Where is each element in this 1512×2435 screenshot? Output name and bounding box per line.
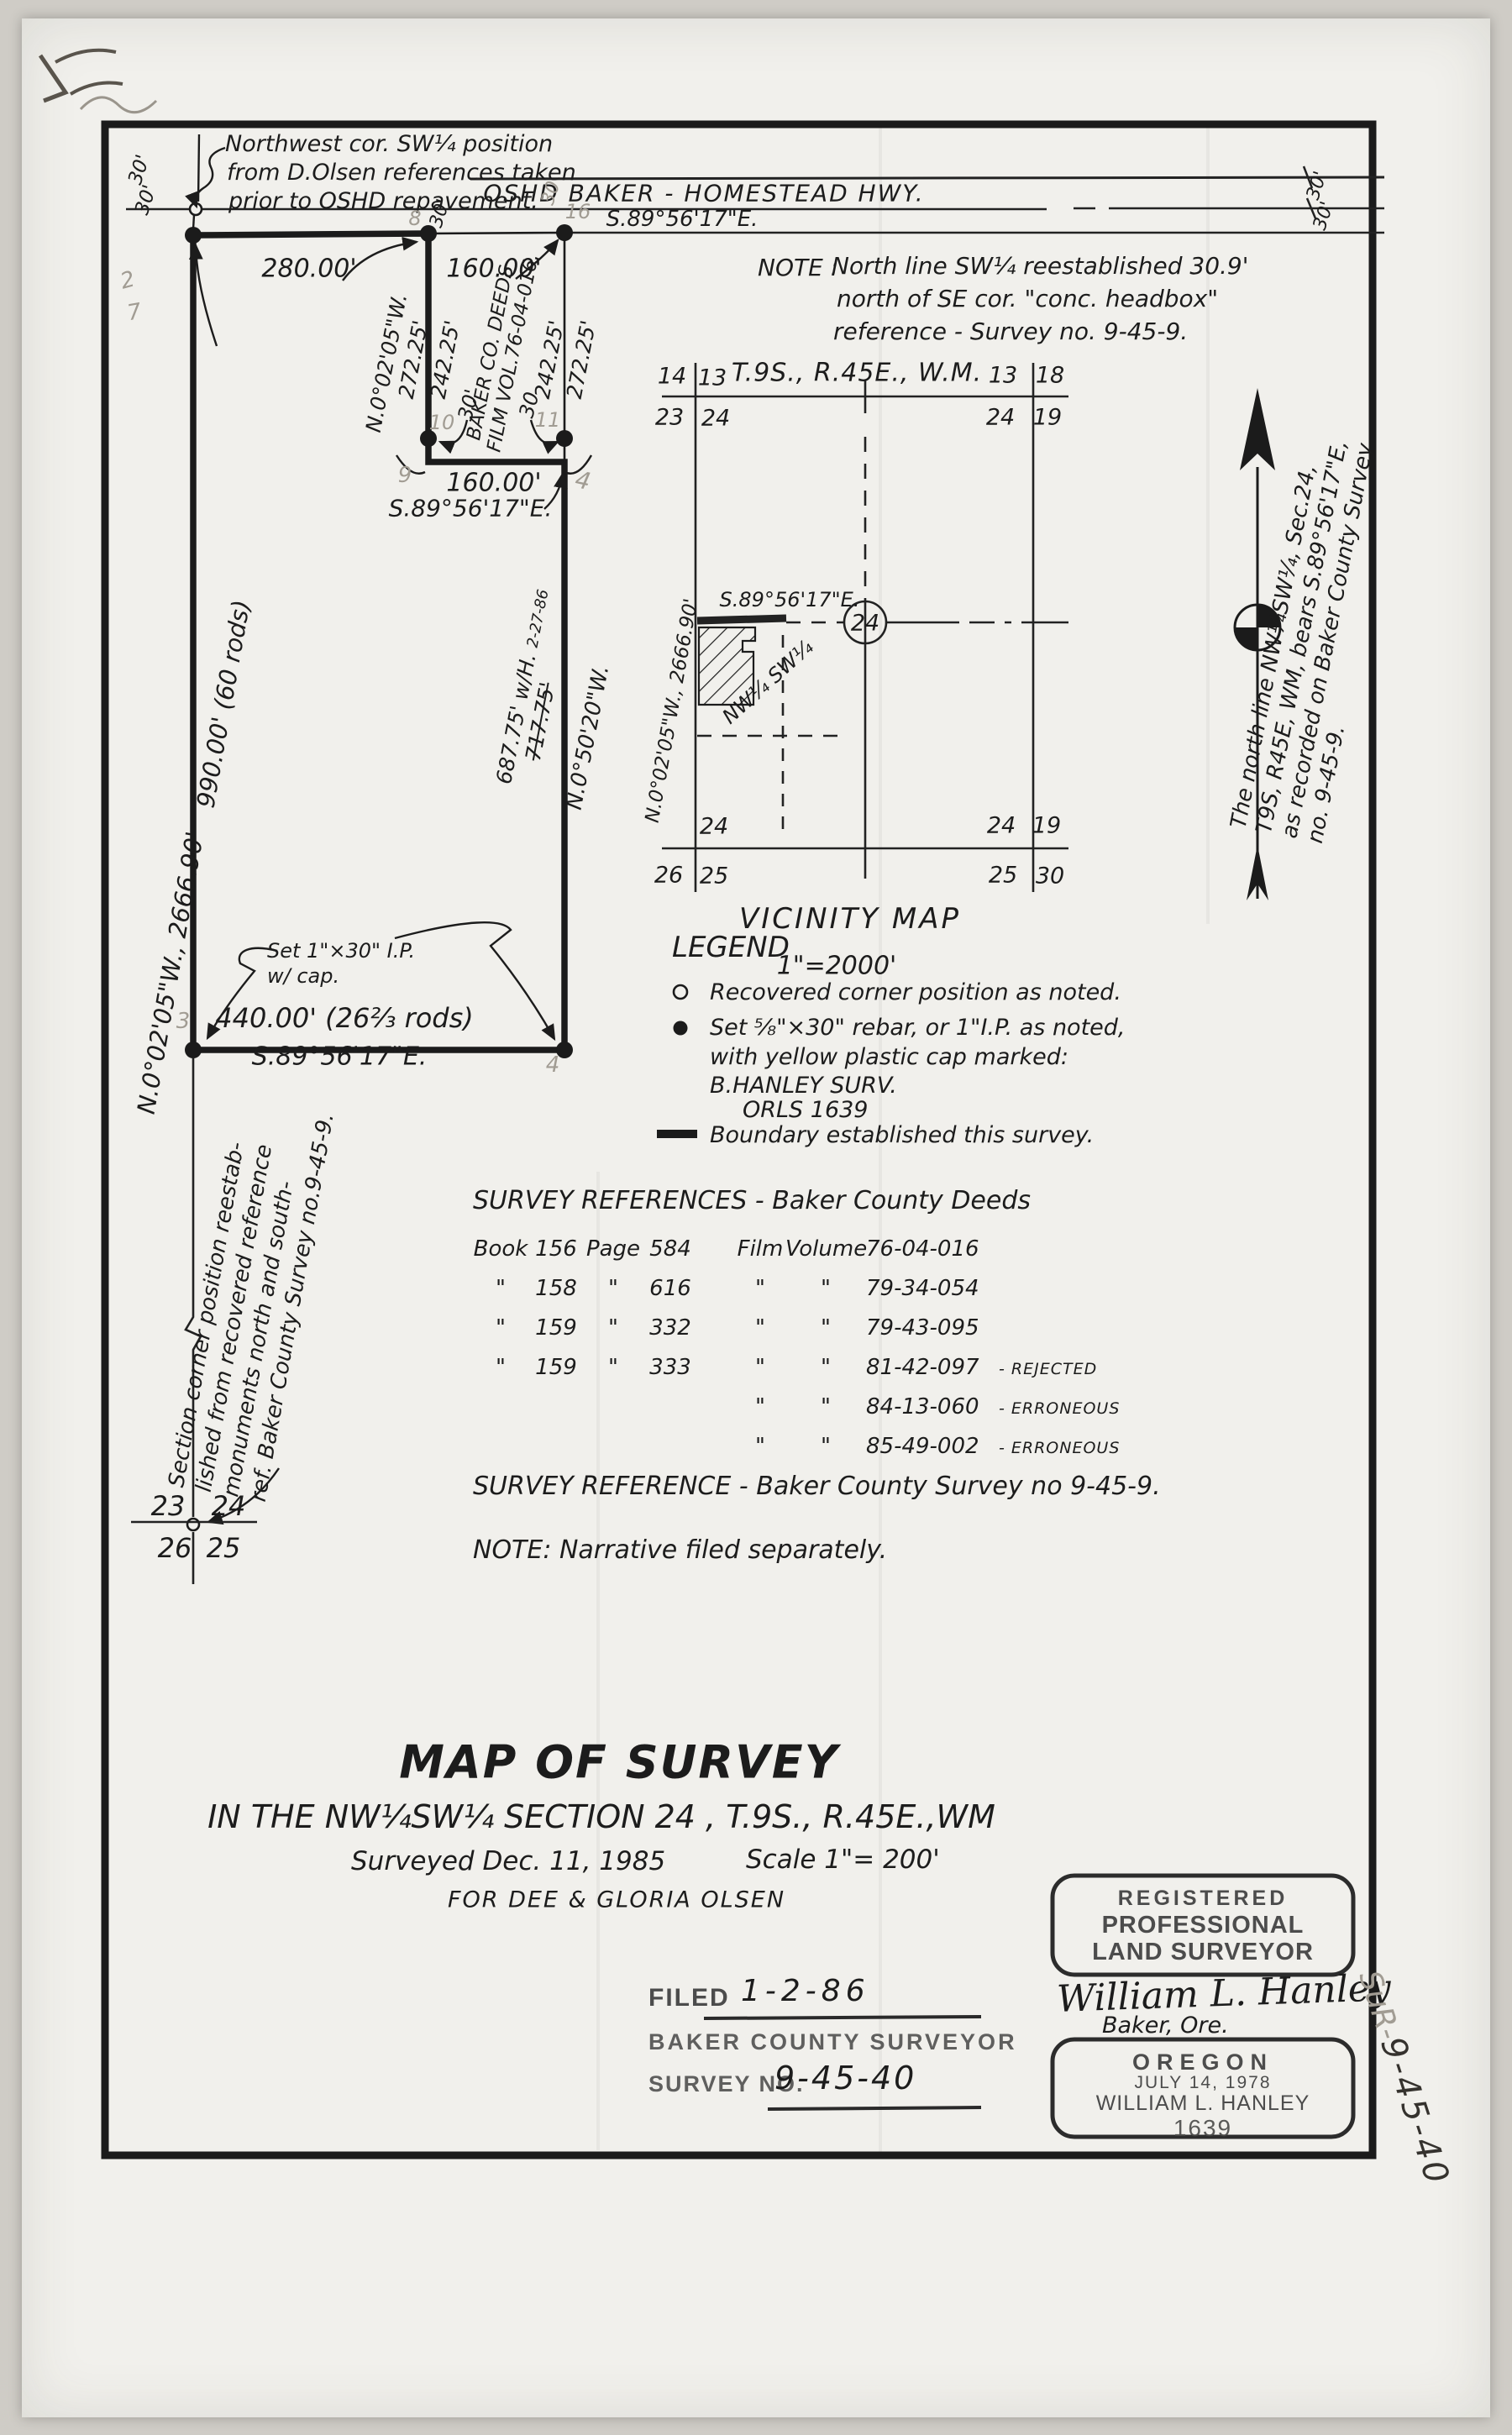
legend-item2-line3: B.HANLEY SURV. [710, 1073, 897, 1099]
ref-film-label: " [735, 1276, 785, 1301]
pencil-mark: 11 [535, 408, 561, 432]
legend-filled-circle-icon [674, 1021, 688, 1036]
map-scale: Scale 1"= 200' [746, 1845, 940, 1875]
vicinity-sec-num: 23 [655, 405, 684, 431]
map-subtitle: IN THE NW¼SW¼ SECTION 24 , T.9S., R.45E.… [207, 1798, 995, 1835]
reference-row: ""84-13-060- ERRONEOUS [473, 1394, 1120, 1434]
reference-row: "159"332""79-43-095 [473, 1315, 1120, 1355]
pencil-mark: 9 [398, 463, 412, 488]
county-surveyor-stamp: BAKER COUNTY SURVEYOR [648, 2029, 1017, 2055]
vicinity-sec-num: 19 [1033, 405, 1062, 431]
section-corner-24: 24 [212, 1490, 246, 1522]
vicinity-sec-num: 19 [1032, 813, 1061, 839]
surveyed-date: Surveyed Dec. 11, 1985 [351, 1846, 665, 1876]
ref-vol-label: " [785, 1276, 866, 1301]
stamp-number: 1639 [1053, 2115, 1353, 2142]
highway-bearing: S.89°56'17"E. [606, 207, 759, 232]
ref-book-label: " [473, 1315, 528, 1341]
stamp-name: WILLIAM L. HANLEY [1053, 2091, 1353, 2116]
client-line: FOR DEE & GLORIA OLSEN [448, 1887, 785, 1913]
vicinity-sec-num: 13 [989, 363, 1017, 389]
vicinity-sec-num: 14 [658, 364, 686, 390]
ref-book-label: Book [473, 1236, 528, 1262]
ref-page: 584 [643, 1236, 698, 1262]
scanned-survey-document: { "margin_label": {"prefix": "SuR-", "nu… [0, 0, 1512, 2435]
ref-page-label: " [584, 1276, 643, 1301]
ref-book-label: " [473, 1276, 528, 1301]
references-title: SURVEY REFERENCES - Baker County Deeds [473, 1186, 1031, 1215]
stamp-line1: REGISTERED [1053, 1887, 1353, 1911]
set-ip-note-line1: Set 1"×30" I.P. [267, 939, 415, 963]
vicinity-sec-num: 24 [701, 406, 730, 432]
vicinity-sec-num: 25 [989, 863, 1017, 889]
ref-film-label: " [735, 1315, 785, 1341]
ref-book: 156 [528, 1236, 584, 1262]
section-corner-26: 26 [158, 1532, 192, 1564]
legend-item2-line4: ORLS 1639 [743, 1097, 869, 1123]
stamp-date: JULY 14, 1978 [1053, 2073, 1353, 2093]
signature-city: Baker, Ore. [1102, 2013, 1229, 2039]
ref-suffix: - ERRONEOUS [999, 1399, 1120, 1418]
stamp-state: OREGON [1053, 2049, 1353, 2076]
stamp-line3: LAND SURVEYOR [1053, 1939, 1353, 1966]
vicinity-scale: 1"=2000' [777, 952, 897, 981]
ref-film-label: " [735, 1355, 785, 1380]
reference-row: "159"333""81-42-097- REJECTED [473, 1355, 1120, 1394]
ref-number: 76-04-016 [866, 1236, 999, 1262]
pencil-mark: 4 [546, 1052, 560, 1078]
ref-book-label: " [473, 1355, 528, 1380]
ref-vol-label: Volume [785, 1236, 866, 1262]
ref-book: 158 [528, 1276, 584, 1301]
narrative-note: NOTE: Narrative filed separately. [473, 1535, 887, 1565]
vicinity-sec-num: 18 [1036, 363, 1064, 389]
vicinity-sec-num: 13 [698, 365, 727, 391]
ref-number: 85-49-002 [866, 1434, 999, 1459]
ne-note-line3: reference - Survey no. 9-45-9. [833, 317, 1188, 345]
legend-item3: Boundary established this survey. [710, 1122, 1094, 1148]
nw-corner-note-line1: Northwest cor. SW¼ position [225, 131, 553, 157]
legend-item1: Recovered corner position as noted. [710, 979, 1121, 1005]
pencil-mark: 8 [408, 207, 421, 230]
vicinity-bearing: S.89°56'17"E. [720, 588, 860, 611]
vicinity-sec-num: 24 [986, 405, 1015, 431]
filed-label: FILED [648, 1984, 730, 2013]
ref-page: 332 [643, 1315, 698, 1341]
pencil-mark: 10 [429, 411, 455, 434]
reference-single: SURVEY REFERENCE - Baker County Survey n… [473, 1472, 1161, 1501]
ref-suffix: - ERRONEOUS [999, 1439, 1120, 1457]
reference-row: ""85-49-002- ERRONEOUS [473, 1434, 1120, 1473]
ne-note-label: NOTE : [758, 254, 838, 281]
ref-vol-label: " [785, 1315, 866, 1341]
dim-440: 440.00' (26⅔ rods) [215, 1002, 474, 1034]
pencil-mark: 16 [565, 200, 591, 223]
survey-no-value: 9-45-40 [774, 2060, 916, 2097]
map-title: MAP OF SURVEY [399, 1736, 839, 1789]
ref-number: 79-34-054 [866, 1276, 999, 1301]
section-corner-23: 23 [151, 1490, 186, 1522]
ref-film-label: Film [735, 1236, 785, 1262]
reference-row: Book156Page584FilmVolume76-04-016 [473, 1236, 1120, 1276]
ref-vol-label: " [785, 1394, 866, 1420]
ref-page: 616 [643, 1276, 698, 1301]
ref-number: 81-42-097 [866, 1355, 999, 1380]
dim-160-jog: 160.00' [446, 469, 541, 498]
filed-date: 1-2-86 [741, 1974, 870, 2008]
ne-note-line1: North line SW¼ reestablished 30.9' [832, 252, 1248, 280]
dim-280: 280.00' [261, 255, 356, 284]
ref-vol-label: " [785, 1434, 866, 1459]
ref-book: 159 [528, 1315, 584, 1341]
jog-bearing: S.89°56'17"E. [389, 495, 553, 522]
stamp-line2: PROFESSIONAL [1053, 1912, 1353, 1939]
legend-title: LEGEND [672, 931, 790, 964]
ref-number: 79-43-095 [866, 1315, 999, 1341]
reference-row: "158"616""79-34-054 [473, 1276, 1120, 1315]
ref-page-label: Page [584, 1236, 643, 1262]
legend-item2-line2: with yellow plastic cap marked: [710, 1044, 1068, 1070]
ne-note-line2: north of SE cor. "conc. headbox" [837, 285, 1218, 312]
references-table: Book156Page584FilmVolume76-04-016 "158"6… [473, 1236, 1120, 1473]
pencil-mark: 3 [176, 1009, 191, 1034]
ref-film-label: " [735, 1394, 785, 1420]
set-ip-note-line2: w/ cap. [267, 964, 339, 988]
legend-open-circle-icon [674, 985, 687, 999]
pencil-scribble [81, 97, 156, 113]
ref-page-label: " [584, 1355, 643, 1380]
scan-artifacts-icon [40, 50, 123, 101]
ref-vol-label: " [785, 1355, 866, 1380]
vicinity-sec-num: 24 [700, 814, 728, 840]
legend-item2-line1: Set ⅝"×30" rebar, or 1"I.P. as noted, [710, 1015, 1126, 1041]
ref-number: 84-13-060 [866, 1394, 999, 1420]
ref-book: 159 [528, 1355, 584, 1380]
ref-film-label: " [735, 1434, 785, 1459]
vicinity-sec-num: 26 [654, 863, 683, 889]
vicinity-sec-num: 25 [700, 863, 728, 890]
vicinity-sec-num: 24 [987, 813, 1016, 839]
vicinity-township: T.9S., R.45E., W.M. [732, 359, 982, 388]
legend-symbols [657, 985, 697, 1134]
ref-page-label: " [584, 1315, 643, 1341]
vicinity-sec24: 24 [851, 611, 879, 637]
vicinity-sec-num: 30 [1036, 863, 1064, 890]
ref-page: 333 [643, 1355, 698, 1380]
section-corner-25: 25 [207, 1532, 241, 1564]
south-bearing: S.89°56'17"E. [252, 1042, 428, 1072]
ref-suffix: - REJECTED [999, 1360, 1097, 1378]
